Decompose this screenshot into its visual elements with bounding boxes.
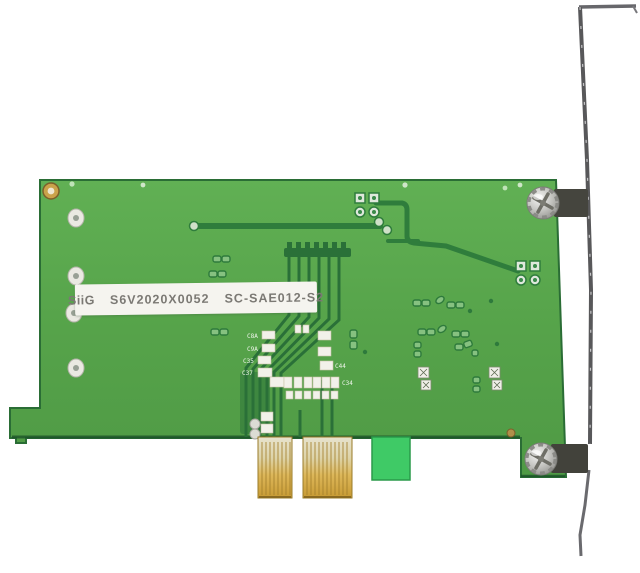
bracket-top-tab [579, 6, 636, 7]
via [69, 181, 74, 186]
silkscreen-c34: C34 [342, 380, 353, 387]
screw-bottom [525, 443, 557, 475]
brass-via [507, 429, 515, 437]
retention-tab [372, 437, 410, 480]
bracket-rail [580, 7, 591, 444]
gold-fingers-short [258, 437, 292, 498]
silkscreen-c44: C44 [335, 363, 346, 370]
silkscreen-c8a: C8A [247, 333, 258, 340]
silkscreen-c37: C37 [242, 370, 253, 377]
pci-bracket [579, 6, 637, 556]
via [518, 183, 523, 188]
serial-label-sticker: SiiG S6V2020X0052 SC-SAE012-S2 [75, 282, 317, 316]
silkscreen-c35: C35 [243, 358, 254, 365]
via [402, 182, 407, 187]
screw-top [527, 187, 559, 219]
via [503, 186, 508, 191]
mounting-hole [43, 183, 59, 199]
label-serial: S6V2020X0052 [110, 291, 210, 306]
label-model: SC-SAE012-S2 [224, 290, 324, 305]
via [141, 183, 146, 188]
silkscreen-c9a: C9A [247, 346, 258, 353]
label-brand: SiiG [68, 293, 95, 307]
pcie-card-photo: C8A C9A C35 C37 C44 C34 [0, 0, 640, 573]
pcie-edge-connector [258, 437, 352, 498]
bracket-tail [580, 470, 589, 556]
